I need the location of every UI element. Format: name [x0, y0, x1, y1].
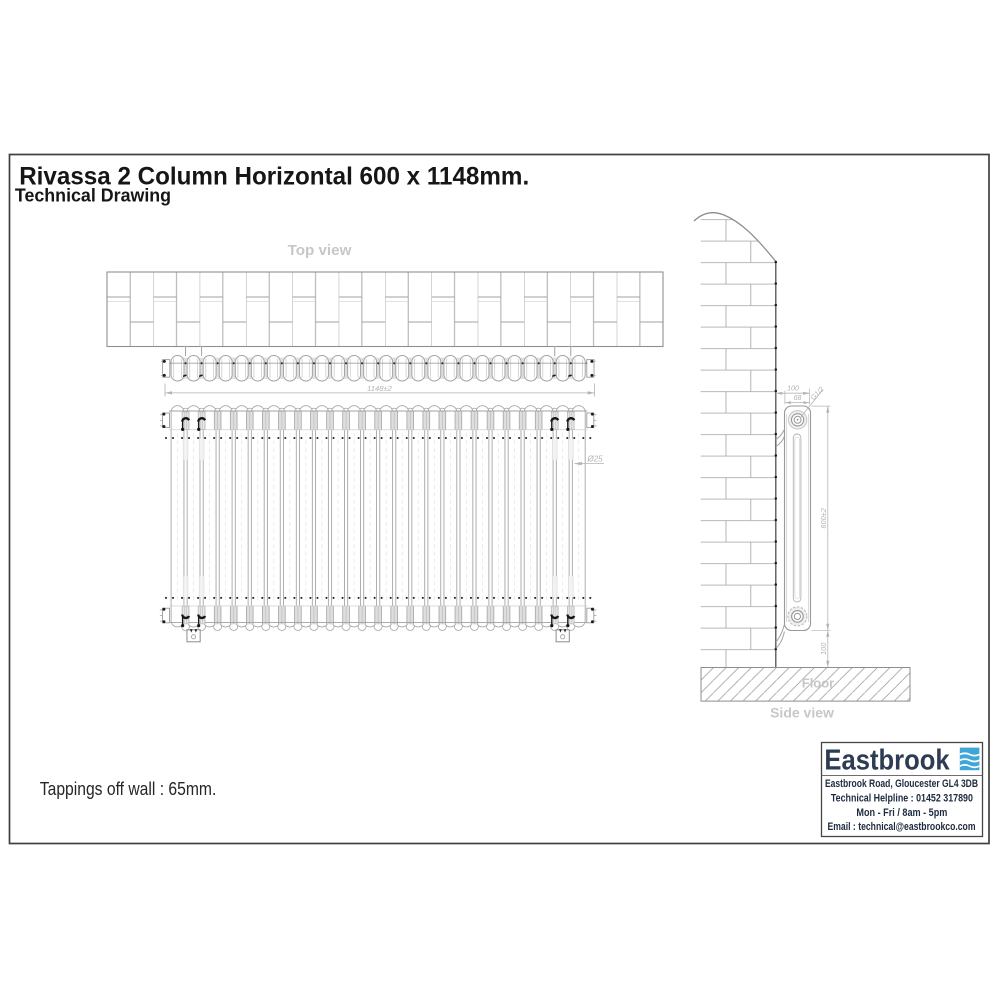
svg-text:68: 68: [794, 395, 802, 402]
svg-text:Eastbrook Road, Gloucester GL4: Eastbrook Road, Gloucester GL4 3DB: [825, 778, 978, 790]
svg-text:Technical Helpline : 01452 317: Technical Helpline : 01452 317890: [831, 793, 973, 805]
svg-text:Technical Drawing: Technical Drawing: [15, 185, 171, 205]
svg-text:Top view: Top view: [288, 242, 352, 259]
svg-text:Floor: Floor: [802, 676, 835, 691]
svg-text:G1/2: G1/2: [810, 386, 826, 402]
svg-text:100: 100: [819, 642, 828, 655]
svg-text:Ø25: Ø25: [587, 454, 604, 463]
svg-text:100: 100: [787, 386, 799, 393]
svg-text:Eastbrook: Eastbrook: [824, 745, 950, 777]
svg-text:Email : technical@eastbrookco.: Email : technical@eastbrookco.com: [828, 821, 976, 833]
svg-text:Side view: Side view: [770, 705, 834, 721]
svg-text:Mon - Fri / 8am - 5pm: Mon - Fri / 8am - 5pm: [856, 807, 947, 819]
svg-text:600±2: 600±2: [819, 508, 828, 529]
svg-text:Tappings off wall : 65mm.: Tappings off wall : 65mm.: [40, 779, 217, 799]
svg-text:1148±2: 1148±2: [367, 384, 392, 393]
